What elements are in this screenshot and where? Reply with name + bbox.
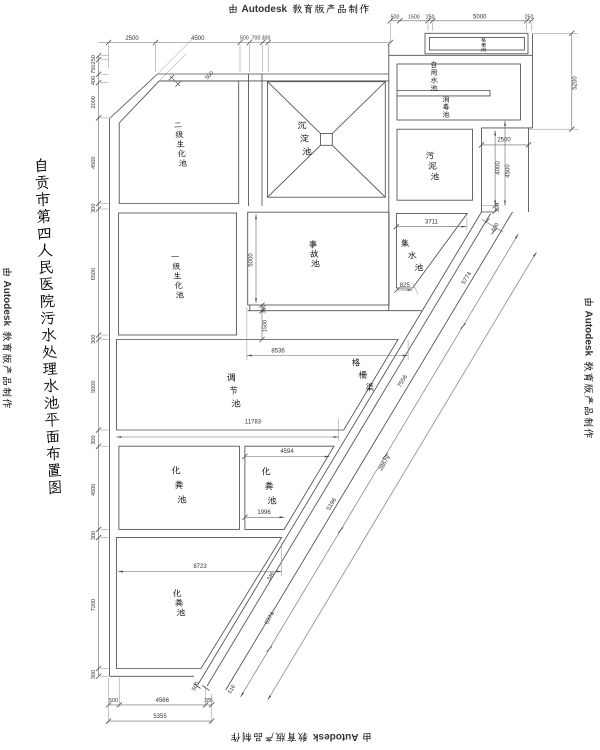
svg-text:Autodesk: Autodesk bbox=[1, 281, 12, 327]
svg-text:300: 300 bbox=[91, 204, 97, 213]
svg-text:6500: 6500 bbox=[91, 268, 97, 280]
svg-text:300: 300 bbox=[495, 203, 501, 212]
svg-text:300: 300 bbox=[262, 304, 268, 313]
svg-text:300: 300 bbox=[262, 36, 271, 42]
svg-text:11783: 11783 bbox=[245, 420, 262, 426]
svg-text:400: 400 bbox=[91, 76, 97, 85]
svg-text:1500: 1500 bbox=[263, 320, 269, 332]
svg-text:300: 300 bbox=[91, 531, 97, 540]
svg-text:250: 250 bbox=[525, 15, 534, 21]
svg-text:500: 500 bbox=[391, 15, 400, 21]
svg-text:4594: 4594 bbox=[280, 449, 294, 455]
svg-text:2000: 2000 bbox=[91, 96, 97, 108]
svg-text:8723: 8723 bbox=[193, 564, 207, 570]
svg-text:5000: 5000 bbox=[248, 253, 254, 267]
svg-text:300: 300 bbox=[91, 435, 97, 444]
svg-text:700: 700 bbox=[252, 36, 261, 42]
svg-text:3711: 3711 bbox=[425, 220, 439, 226]
svg-text:300: 300 bbox=[91, 670, 97, 679]
svg-text:7200: 7200 bbox=[91, 599, 97, 611]
svg-text:1500: 1500 bbox=[408, 15, 420, 21]
svg-text:5355: 5355 bbox=[153, 714, 167, 720]
svg-text:4500: 4500 bbox=[191, 36, 205, 42]
svg-text:Autodesk: Autodesk bbox=[242, 4, 288, 15]
svg-text:5000: 5000 bbox=[473, 15, 487, 21]
svg-text:4500: 4500 bbox=[91, 156, 97, 168]
svg-text:4000: 4000 bbox=[496, 161, 502, 175]
svg-text:5200: 5200 bbox=[573, 76, 579, 90]
svg-text:250: 250 bbox=[91, 55, 97, 64]
svg-text:5000: 5000 bbox=[91, 380, 97, 392]
svg-text:Autodesk: Autodesk bbox=[583, 311, 594, 357]
svg-text:4566: 4566 bbox=[156, 698, 170, 704]
svg-text:2500: 2500 bbox=[497, 138, 511, 144]
svg-text:Autodesk: Autodesk bbox=[313, 731, 359, 742]
svg-text:500: 500 bbox=[240, 36, 249, 42]
svg-text:8536: 8536 bbox=[271, 349, 285, 355]
svg-text:250: 250 bbox=[426, 15, 435, 21]
svg-text:750: 750 bbox=[91, 65, 97, 74]
svg-text:2500: 2500 bbox=[125, 36, 139, 42]
svg-text:4500: 4500 bbox=[506, 164, 512, 178]
svg-text:1996: 1996 bbox=[257, 510, 271, 516]
svg-text:4500: 4500 bbox=[91, 484, 97, 496]
svg-text:500: 500 bbox=[109, 698, 118, 704]
svg-text:825: 825 bbox=[400, 283, 411, 289]
svg-text:300: 300 bbox=[91, 335, 97, 344]
